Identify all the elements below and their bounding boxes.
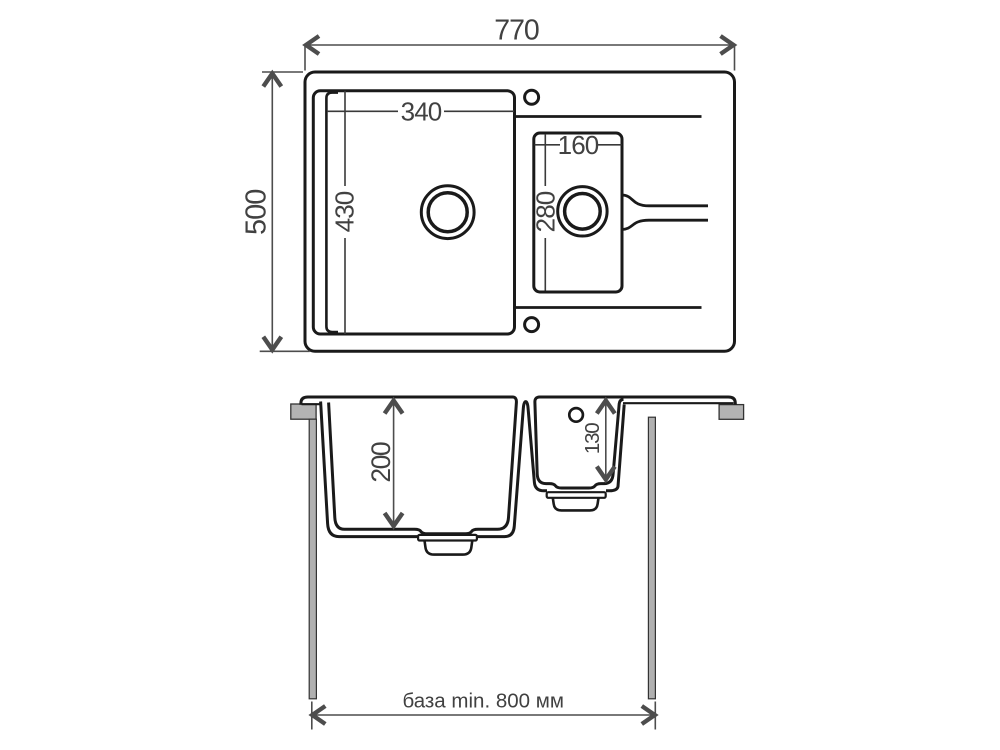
svg-text:280: 280 bbox=[531, 191, 561, 232]
svg-text:340: 340 bbox=[401, 97, 442, 127]
svg-text:500: 500 bbox=[241, 190, 273, 235]
svg-text:160: 160 bbox=[558, 130, 599, 160]
svg-text:430: 430 bbox=[330, 191, 360, 232]
svg-text:130: 130 bbox=[581, 423, 604, 454]
svg-text:770: 770 bbox=[494, 15, 539, 47]
svg-text:200: 200 bbox=[366, 442, 396, 482]
svg-text:база min. 800 мм: база min. 800 мм bbox=[402, 690, 563, 713]
